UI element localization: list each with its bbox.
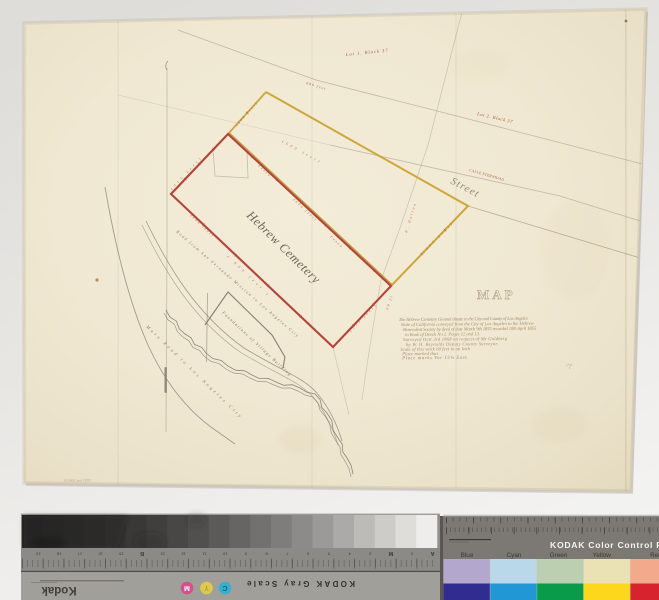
svg-text:C: C — [222, 584, 227, 591]
svg-text:18: 18 — [56, 551, 61, 556]
svg-text:KODAK Gray Scale: KODAK Gray Scale — [246, 579, 355, 588]
svg-text:M: M — [388, 550, 393, 556]
svg-text:Green: Green — [550, 552, 568, 559]
svg-text:MAP: MAP — [477, 287, 516, 302]
svg-text:Yellow: Yellow — [593, 552, 612, 559]
svg-text:Cyan: Cyan — [507, 552, 522, 559]
svg-text:B: B — [140, 550, 144, 556]
svg-text:A: A — [431, 550, 435, 556]
svg-text:M: M — [184, 584, 190, 591]
svg-text:Red: Red — [650, 552, 659, 559]
svg-text:13: 13 — [160, 551, 165, 556]
svg-text:N 5902 pol 1093: N 5902 pol 1093 — [63, 478, 91, 483]
svg-text:Kodak: Kodak — [41, 584, 77, 596]
svg-text:12: 12 — [181, 551, 186, 556]
svg-text:KODAK Color Control P: KODAK Color Control P — [550, 540, 659, 550]
svg-text:Y: Y — [204, 584, 209, 591]
svg-text:Place marks Var 15¼ East.: Place marks Var 15¼ East. — [401, 355, 468, 361]
svg-text:17: 17 — [77, 551, 82, 556]
svg-text:16: 16 — [98, 551, 103, 556]
svg-text:19: 19 — [35, 551, 40, 556]
svg-text:15: 15 — [118, 551, 123, 556]
svg-text:10: 10 — [222, 551, 227, 556]
svg-text:Blue: Blue — [461, 552, 474, 559]
